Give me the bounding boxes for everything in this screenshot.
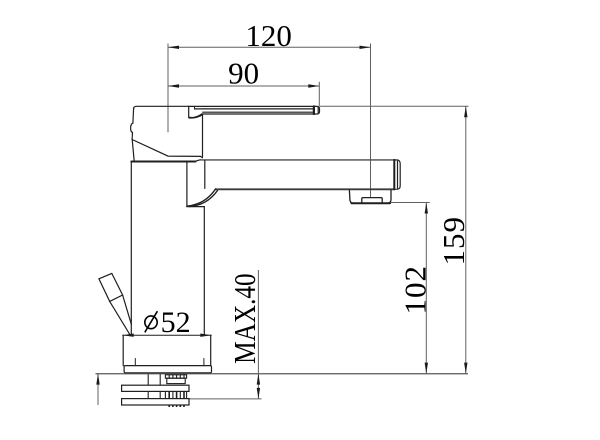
svg-text:102: 102 (398, 265, 433, 315)
svg-text:MAX.40: MAX.40 (227, 273, 262, 364)
svg-text:90: 90 (228, 56, 259, 91)
svg-text:120: 120 (245, 18, 292, 53)
svg-text:52: 52 (161, 306, 191, 339)
svg-text:159: 159 (436, 216, 471, 265)
